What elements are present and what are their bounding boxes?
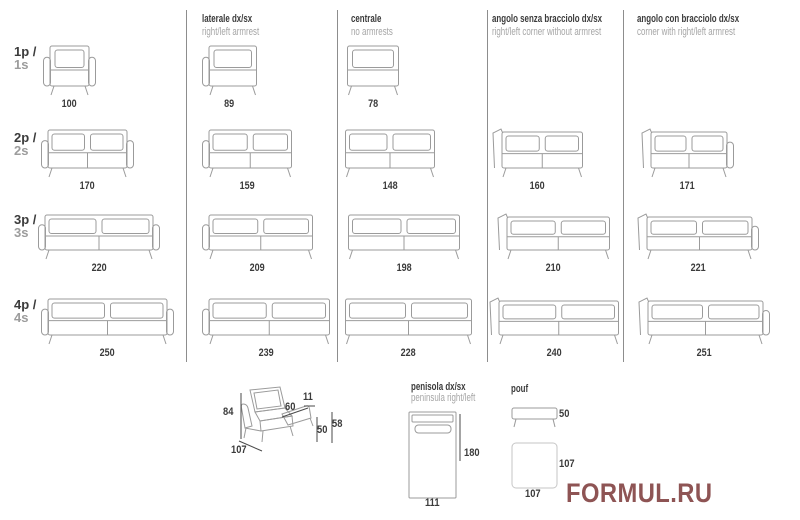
dimension-back-cushion: 11 (303, 391, 313, 403)
width-value: 240 (546, 347, 561, 359)
dimension-seat-height: 50 (317, 424, 327, 436)
column-title: angolo senza bracciolo dx/sx (492, 13, 602, 25)
sofa-spec-sheet: laterale dx/sx right/left armrest centra… (0, 0, 800, 520)
width-value: 198 (396, 262, 411, 274)
column-subtitle: corner with right/left armrest (637, 26, 735, 38)
width-value: 78 (368, 98, 378, 110)
sofa-cell: 239 (191, 297, 341, 359)
width-value: 209 (249, 262, 264, 274)
column-subtitle: right/left corner without armrest (492, 26, 601, 38)
sofa-drawing (38, 213, 160, 260)
width-value: 220 (91, 262, 106, 274)
peninsula-subtitle: peninsula right/left (411, 392, 475, 404)
width-value: 221 (690, 262, 705, 274)
sofa-drawing (347, 44, 399, 96)
sofa-drawing (41, 297, 174, 345)
width-value: 228 (400, 347, 415, 359)
sofa-cell: 209 (182, 213, 332, 274)
dimension-height: 84 (223, 406, 233, 418)
sofa-cell: 210 (478, 213, 628, 274)
dimension-seat-depth: 60 (285, 401, 295, 413)
column-title: centrale (351, 13, 381, 25)
column-subtitle: right/left armrest (202, 26, 259, 38)
sofa-drawing (202, 213, 313, 260)
width-value: 160 (529, 180, 544, 192)
column-header-centrale: centrale no armrests (351, 13, 409, 38)
sofa-drawing (641, 128, 734, 178)
watermark: FORMUL.RU (566, 478, 713, 509)
sofa-cell: 228 (333, 297, 483, 359)
pouf-width-value: 107 (525, 488, 541, 500)
peninsula-width-value: 111 (425, 497, 440, 509)
dimension-armrest-height: 58 (332, 418, 342, 430)
width-value: 170 (79, 180, 94, 192)
sofa-drawing (43, 44, 96, 96)
pouf-depth-value: 107 (559, 458, 575, 470)
width-value: 239 (258, 347, 273, 359)
sofa-cell: 160 (462, 128, 612, 192)
column-header-angolo-con-bracciolo: angolo con bracciolo dx/sx corner with r… (637, 13, 779, 38)
column-header-laterale: laterale dx/sx right/left armrest (202, 13, 281, 38)
column-header-angolo-senza-bracciolo: angolo senza bracciolo dx/sx right/left … (492, 13, 645, 38)
sofa-cell: 251 (629, 297, 779, 359)
column-title: laterale dx/sx (202, 13, 252, 25)
dimension-depth: 107 (231, 444, 247, 456)
width-value: 89 (224, 98, 234, 110)
width-value: 148 (382, 180, 397, 192)
sofa-cell: 89 (154, 44, 304, 110)
width-value: 159 (239, 180, 254, 192)
sofa-cell: 198 (329, 213, 479, 274)
width-value: 210 (545, 262, 560, 274)
sofa-cell: 159 (172, 128, 322, 192)
width-value: 171 (679, 180, 694, 192)
sofa-cell: 221 (623, 213, 773, 274)
sofa-drawing (497, 213, 610, 260)
column-subtitle: no armrests (351, 26, 393, 38)
sofa-cell: 100 (0, 44, 144, 110)
sofa-cell: 240 (479, 297, 629, 359)
width-value: 251 (696, 347, 711, 359)
sofa-cell: 170 (12, 128, 162, 192)
peninsula-top-view-drawing (407, 410, 467, 502)
sofa-cell: 171 (612, 128, 762, 192)
sofa-drawing (202, 297, 330, 345)
sofa-drawing (202, 44, 257, 96)
pouf-title: pouf (511, 383, 528, 395)
sofa-drawing (489, 297, 619, 345)
sofa-cell: 250 (32, 297, 182, 359)
pouf-top-view-drawing (511, 442, 559, 490)
width-value: 250 (99, 347, 114, 359)
sofa-drawing (202, 128, 292, 178)
sofa-drawing (638, 297, 770, 345)
column-title: angolo con bracciolo dx/sx (637, 13, 739, 25)
sofa-drawing (637, 213, 759, 260)
sofa-drawing (345, 128, 435, 178)
sofa-drawing (492, 128, 583, 178)
width-value: 100 (61, 98, 76, 110)
peninsula-length-value: 180 (464, 447, 480, 459)
pouf-height-value: 50 (559, 408, 569, 420)
sofa-drawing (348, 213, 460, 260)
pouf-front-view-drawing (511, 405, 561, 429)
sofa-drawing (345, 297, 472, 345)
sofa-cell: 220 (24, 213, 174, 274)
sofa-cell: 78 (298, 44, 448, 110)
sofa-cell: 148 (315, 128, 465, 192)
sofa-drawing (41, 128, 134, 178)
